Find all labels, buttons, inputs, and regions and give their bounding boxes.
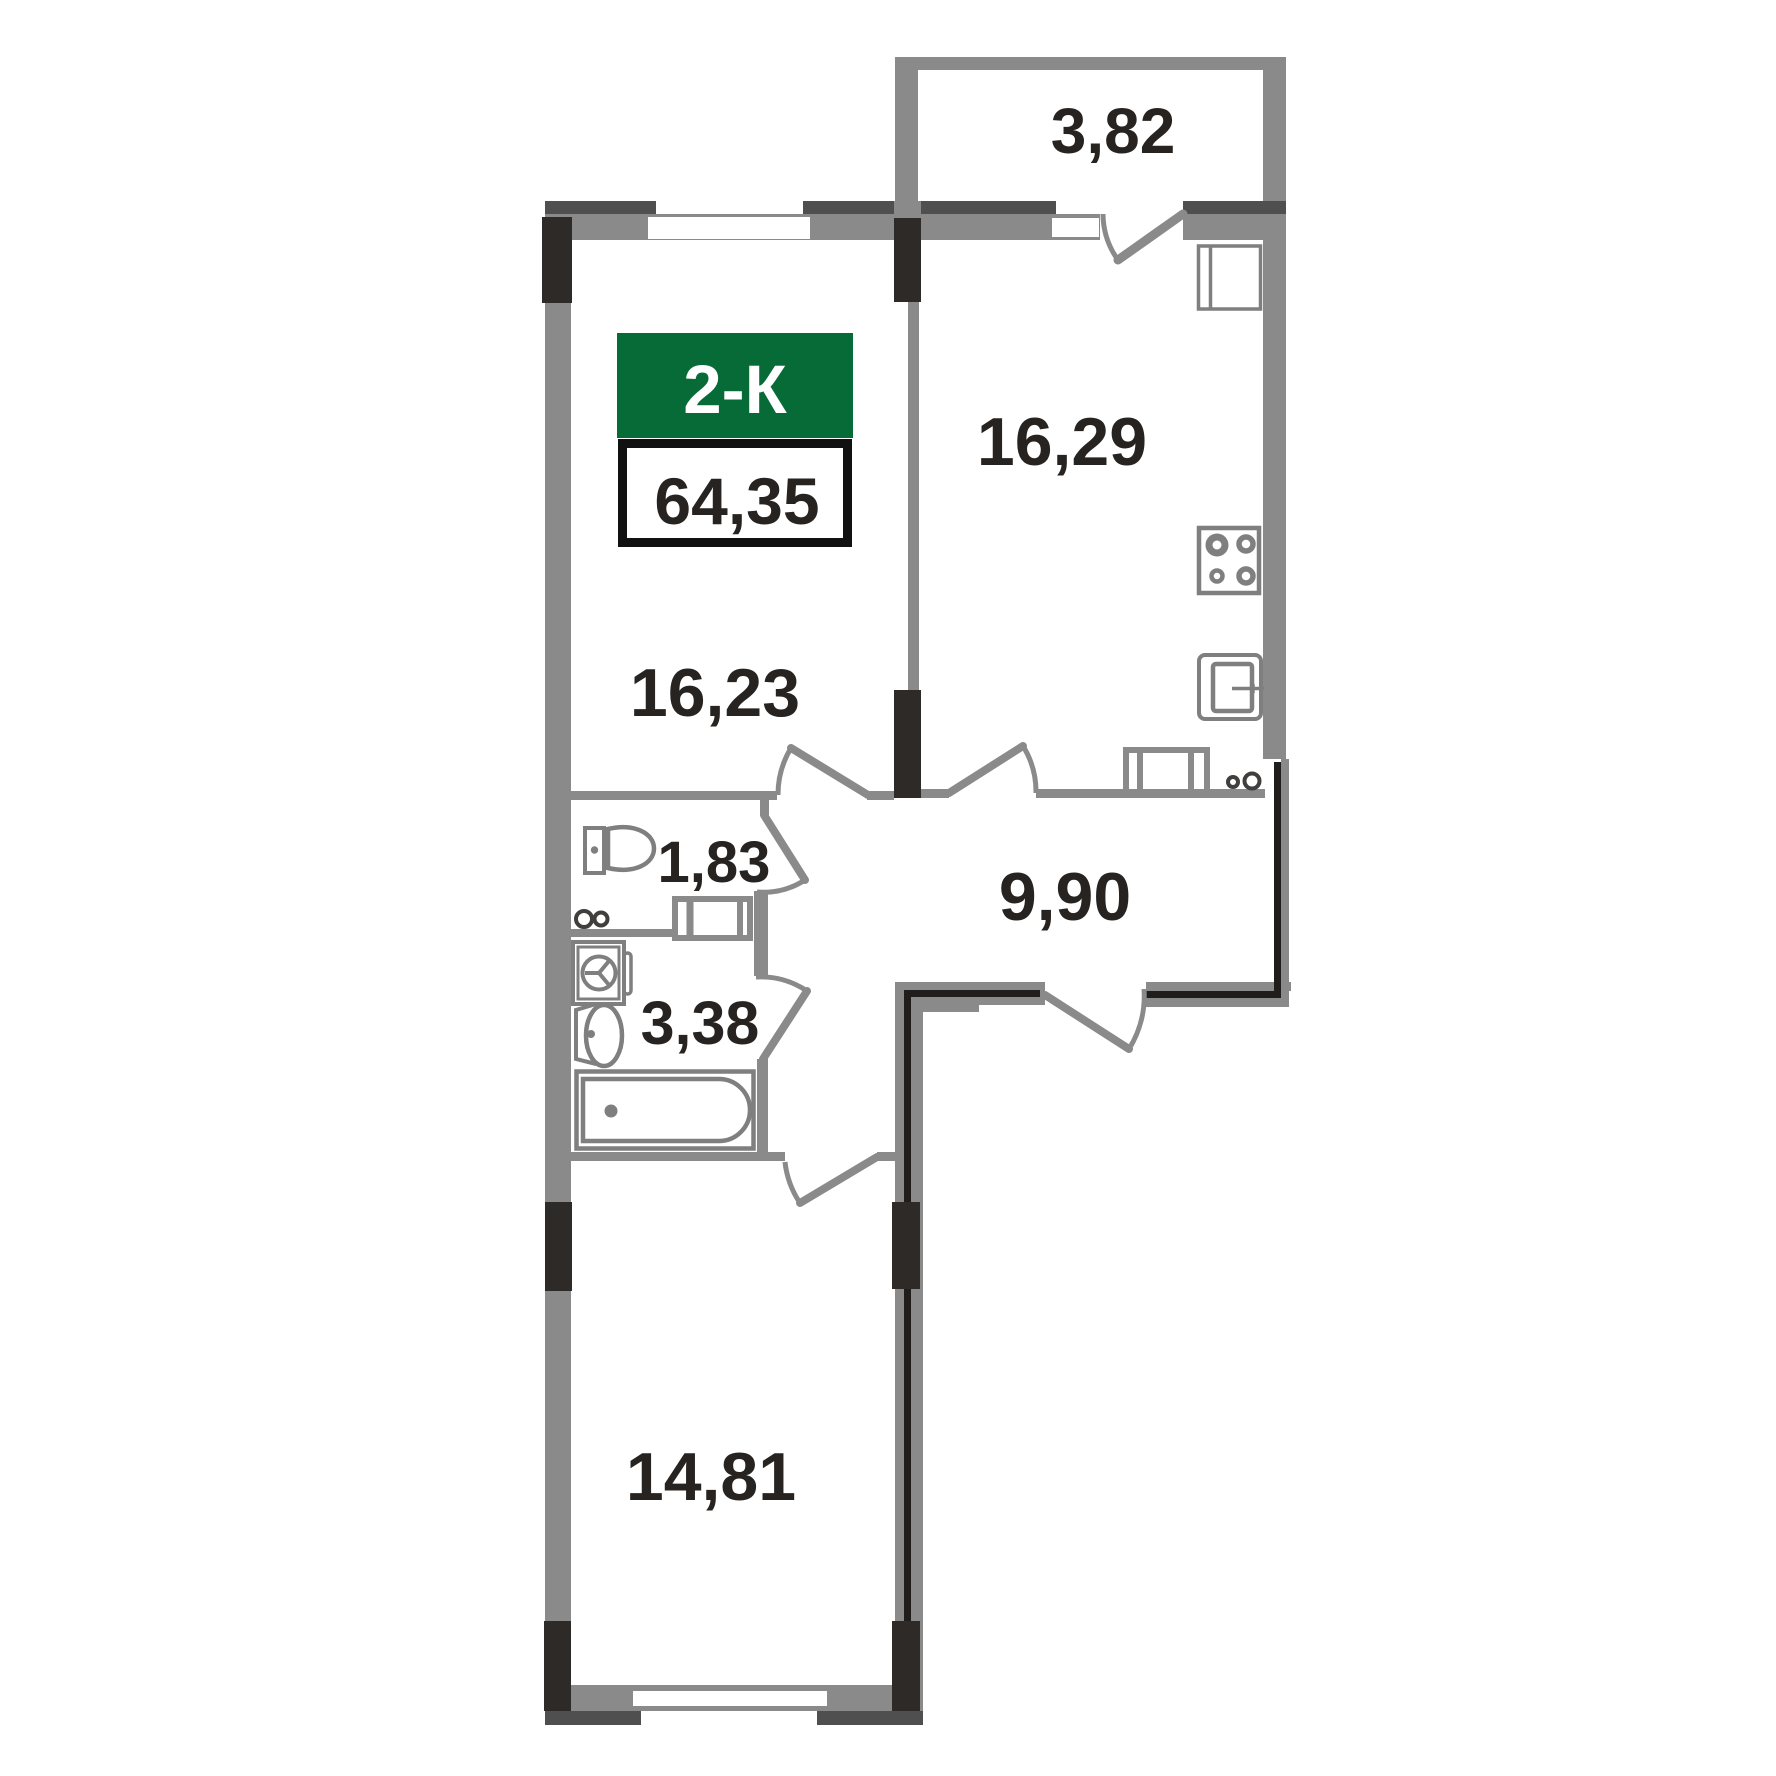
svg-text:3,38: 3,38	[641, 989, 760, 1057]
svg-text:9,90: 9,90	[999, 859, 1131, 935]
svg-text:2-К: 2-К	[683, 351, 787, 428]
svg-text:16,29: 16,29	[977, 404, 1147, 480]
svg-text:1,83: 1,83	[658, 830, 771, 895]
svg-text:16,23: 16,23	[630, 655, 800, 731]
svg-text:3,82: 3,82	[1051, 95, 1176, 167]
svg-text:64,35: 64,35	[654, 464, 819, 538]
svg-text:14,81: 14,81	[626, 1439, 796, 1515]
